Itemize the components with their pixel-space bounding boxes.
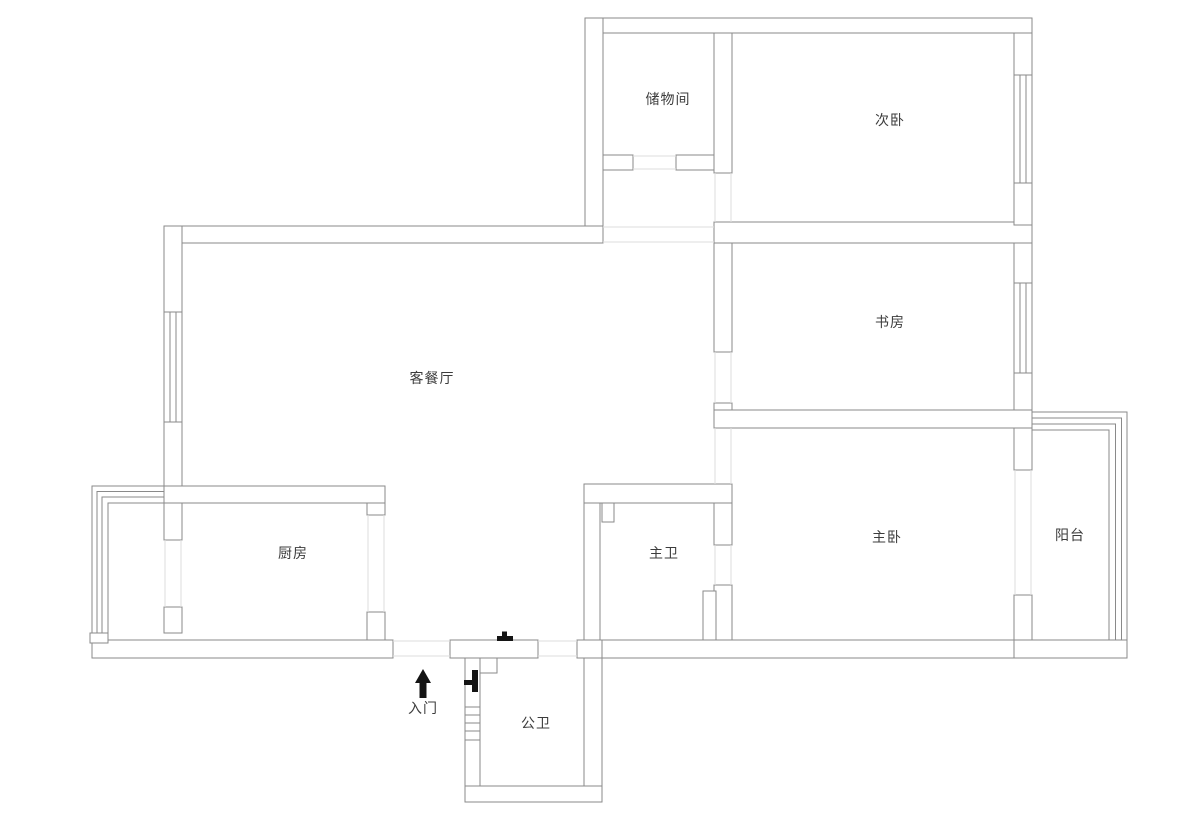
room-label-kitchen: 厨房 (278, 543, 308, 563)
walls-group (90, 18, 1127, 802)
room-label-master-bathroom: 主卫 (649, 543, 679, 563)
entrance-arrow-icon (415, 669, 431, 698)
room-label-public-bathroom: 公卫 (521, 713, 551, 733)
room-label-living-dining: 客餐厅 (410, 368, 455, 388)
floor-plan-drawing (0, 0, 1200, 824)
room-label-master-bedroom: 主卧 (872, 527, 902, 547)
room-label-storage: 储物间 (646, 89, 691, 109)
entrance-label: 入门 (408, 698, 438, 718)
door-closer-icon (497, 632, 513, 642)
room-label-balcony: 阳台 (1055, 525, 1085, 545)
room-label-study: 书房 (875, 312, 905, 332)
room-label-secondary-bedroom: 次卧 (875, 110, 905, 130)
floor-plan-canvas: 储物间 次卧 书房 客餐厅 厨房 主卫 主卧 阳台 公卫 入门 (0, 0, 1200, 824)
